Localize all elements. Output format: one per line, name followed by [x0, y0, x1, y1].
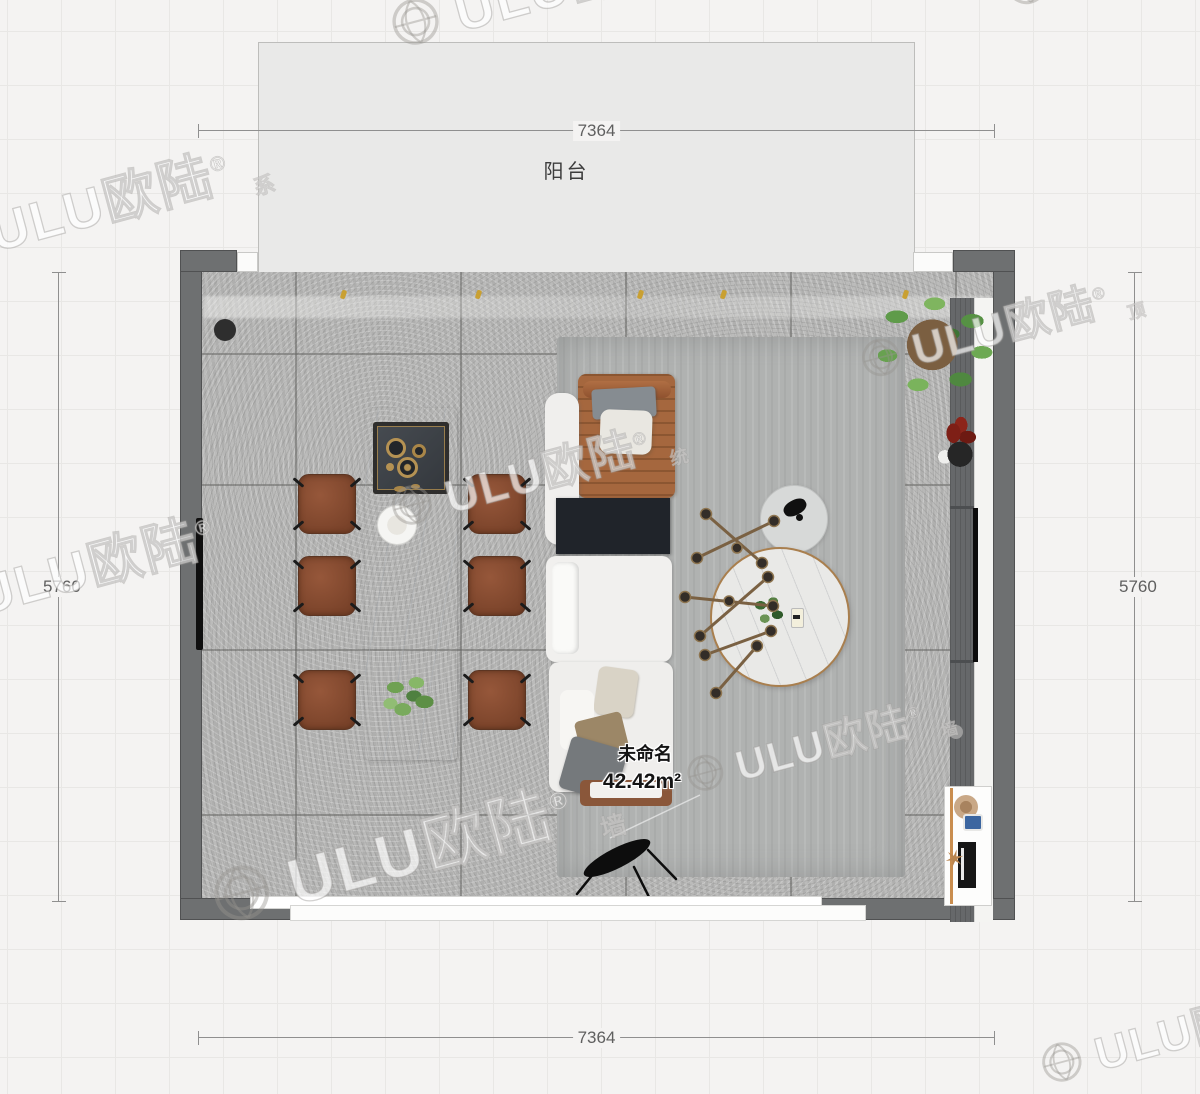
dimension-top-label: 7364 — [573, 121, 621, 141]
balcony-label: 阳台 — [259, 155, 874, 184]
cooktop-knob — [411, 484, 420, 489]
room-name-label[interactable]: 未命名 — [585, 740, 705, 766]
shelf-divider — [950, 506, 974, 509]
top-window-left[interactable] — [237, 252, 258, 272]
globe-icon — [1035, 1035, 1089, 1089]
sofa-side-table[interactable] — [556, 498, 670, 554]
dimension-bottom-label: 7364 — [573, 1028, 621, 1048]
left-wall-vent[interactable] — [196, 518, 203, 650]
floor-light-streak — [204, 296, 991, 318]
dining-chair[interactable] — [468, 474, 526, 534]
dining-chair[interactable] — [468, 556, 526, 616]
burner — [397, 457, 418, 478]
dimension-left-line: 5760 — [58, 272, 59, 902]
dimension-bottom: 7364 — [198, 1037, 995, 1038]
table-decor-dot — [796, 514, 803, 521]
table-plant[interactable] — [378, 670, 440, 728]
bottom-window[interactable] — [290, 905, 866, 921]
dimension-right-label: 5760 — [1114, 577, 1162, 597]
cooktop-knob — [394, 486, 406, 492]
dimension-top: 7364 — [198, 130, 995, 131]
burner — [386, 438, 406, 458]
dimension-bottom-line: 7364 — [198, 1037, 995, 1038]
dimension-left: 5760 — [58, 272, 59, 902]
wall-top-left-segment[interactable] — [180, 250, 237, 272]
potted-plant[interactable] — [878, 293, 996, 401]
chair-legs — [299, 475, 355, 533]
top-window-right[interactable] — [913, 252, 953, 272]
round-side-table[interactable] — [760, 485, 828, 553]
dimension-right: 5760 — [1134, 272, 1135, 902]
chair-legs — [469, 557, 525, 615]
coffee-table-candle[interactable] — [791, 608, 804, 628]
dimension-right-line: 5760 — [1134, 272, 1135, 902]
chair-legs — [469, 475, 525, 533]
watermark: ULU欧陆® 装 — [995, 0, 1200, 22]
shelf-divider — [950, 660, 974, 663]
floor-drain[interactable] — [214, 319, 236, 341]
serving-plate[interactable] — [377, 505, 417, 545]
watermark: ULU欧陆® 装 — [1032, 957, 1200, 1094]
dining-chair[interactable] — [468, 670, 526, 730]
burner — [386, 463, 394, 471]
globe-icon — [999, 0, 1055, 12]
coffee-table-plant[interactable] — [748, 592, 790, 630]
white-pillow[interactable] — [599, 409, 653, 455]
burner — [412, 444, 426, 458]
floorplan-canvas[interactable]: 阳台 7364 7364 5760 5760 — [0, 0, 1200, 1094]
dining-chair[interactable] — [298, 474, 356, 534]
balcony-area[interactable]: 阳台 — [258, 42, 915, 277]
dimension-top-line: 7364 — [198, 130, 995, 131]
dimension-left-label: 5760 — [38, 577, 86, 597]
dining-chair[interactable] — [298, 670, 356, 730]
tv[interactable] — [973, 508, 978, 662]
beige-pillow[interactable] — [593, 665, 639, 718]
chair-legs — [299, 557, 355, 615]
dining-chair[interactable] — [298, 556, 356, 616]
cabinet-knob — [949, 725, 963, 739]
chair-legs — [299, 671, 355, 729]
wall-right[interactable] — [993, 250, 1015, 920]
sofa-cushion — [552, 562, 579, 654]
chair-legs — [469, 671, 525, 729]
wall-top-right-segment[interactable] — [953, 250, 1015, 272]
desk-item[interactable] — [963, 814, 983, 831]
room-area-label[interactable]: 42.42m² — [582, 770, 702, 794]
flower-arrangement[interactable] — [933, 416, 987, 482]
